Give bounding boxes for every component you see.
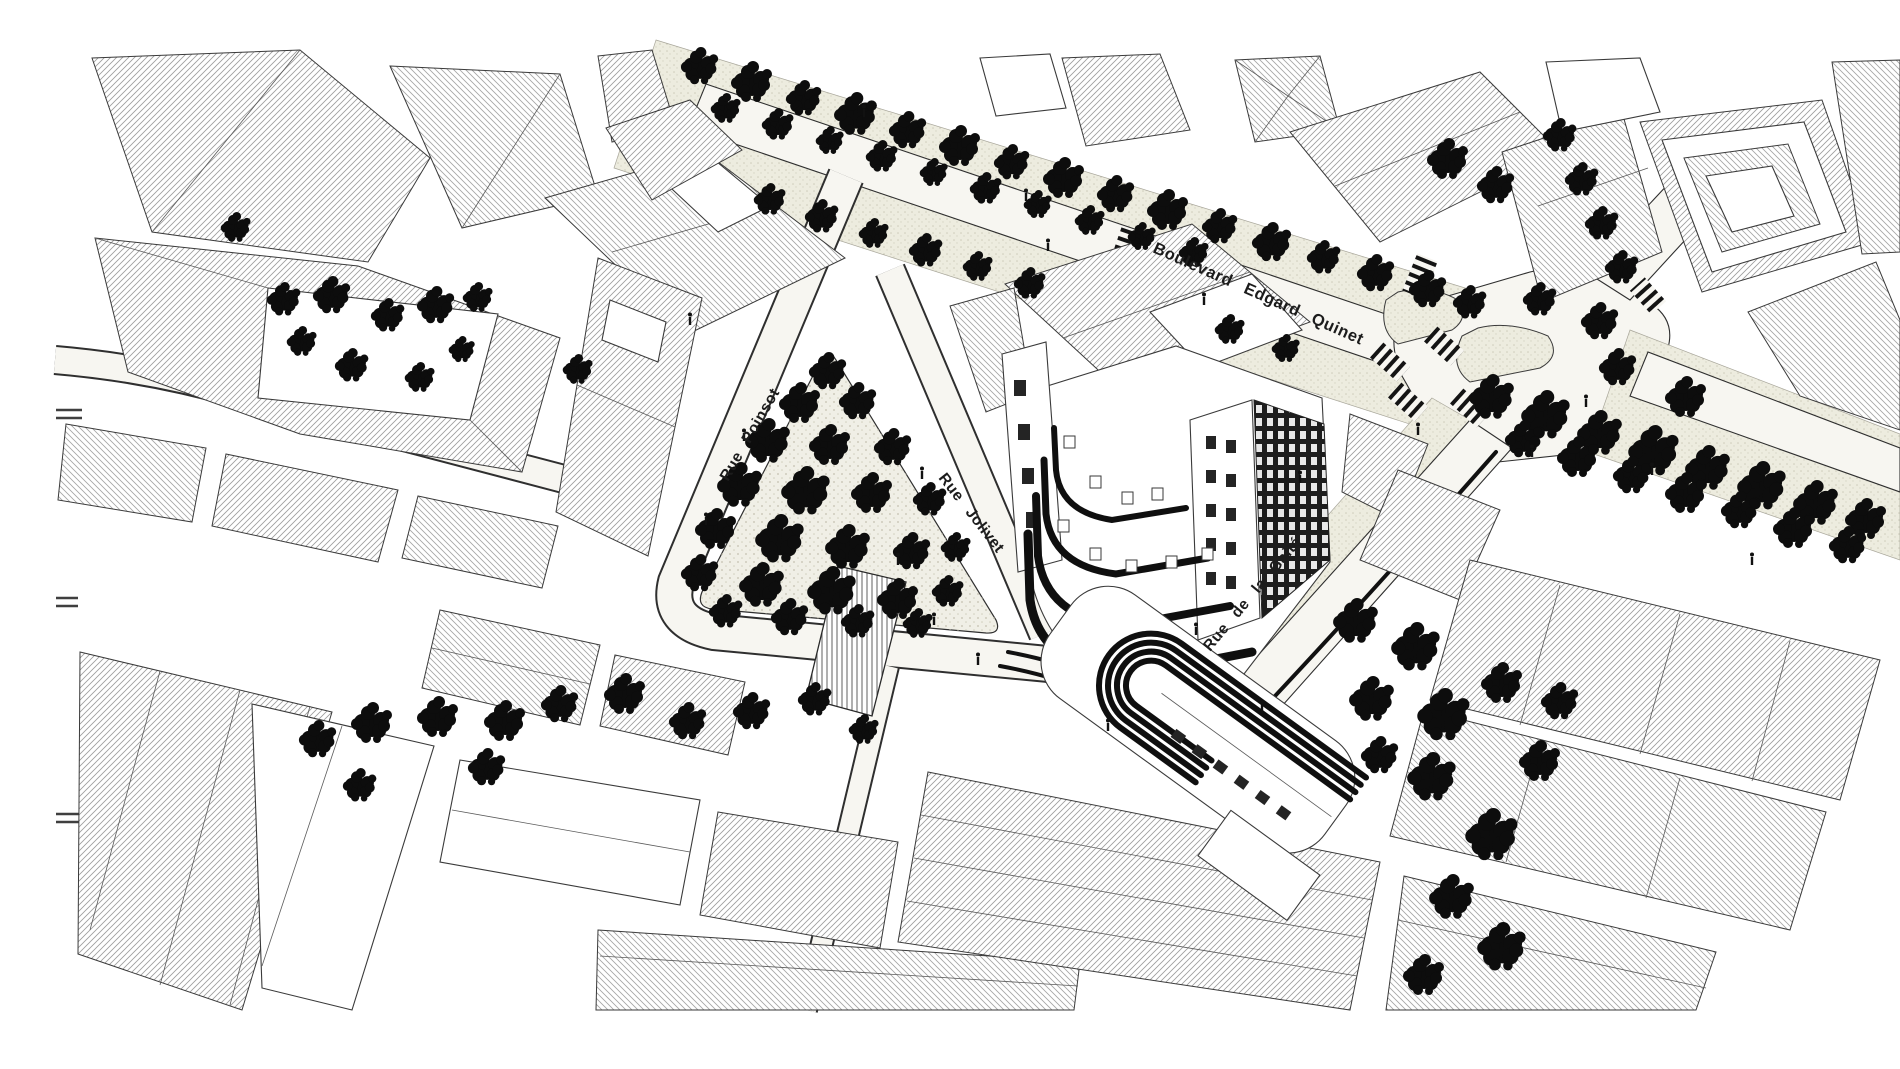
site-plan-drawing: Boulevard Edgard Quinet Rue Poinsot Rue … [0, 0, 1900, 1069]
blocks-southwest [78, 652, 434, 1010]
tree [1349, 676, 1394, 721]
pedestrian-figure [1750, 553, 1754, 566]
pedestrian-figure [920, 467, 924, 480]
tree [417, 696, 458, 737]
axonometric-map: Boulevard Edgard Quinet Rue Poinsot Rue … [0, 0, 1900, 1069]
tree [1391, 622, 1439, 670]
tree [1361, 736, 1398, 773]
